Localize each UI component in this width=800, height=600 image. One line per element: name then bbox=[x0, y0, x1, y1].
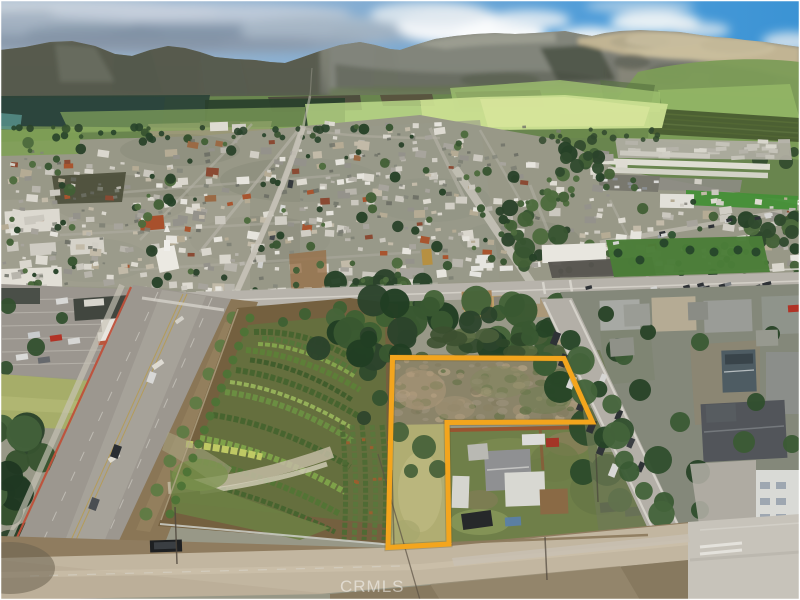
svg-text:CRMLS: CRMLS bbox=[340, 577, 405, 596]
